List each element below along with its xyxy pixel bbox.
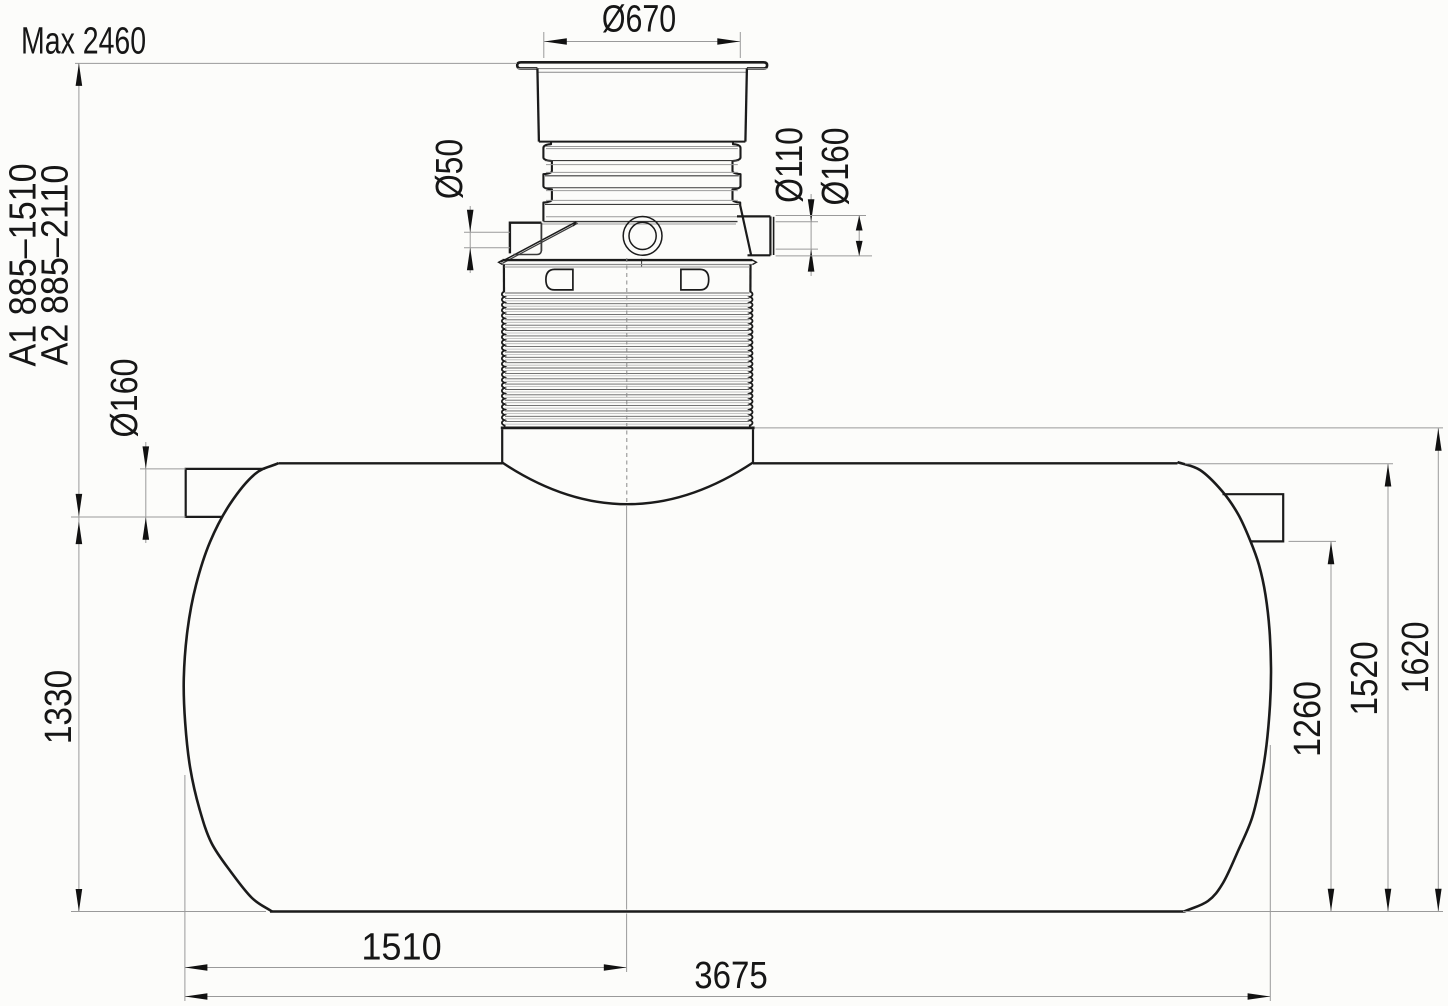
svg-text:1510: 1510 (361, 925, 441, 968)
svg-text:3675: 3675 (694, 954, 768, 997)
svg-text:1330: 1330 (37, 670, 79, 744)
svg-text:1520: 1520 (1343, 641, 1385, 715)
svg-text:Max 2460: Max 2460 (21, 21, 146, 63)
svg-text:Ø110: Ø110 (768, 127, 810, 203)
svg-text:Ø50: Ø50 (428, 139, 470, 199)
svg-text:1260: 1260 (1285, 681, 1328, 757)
svg-text:Ø160: Ø160 (104, 359, 146, 438)
svg-text:1620: 1620 (1395, 622, 1437, 694)
svg-text:Ø670: Ø670 (602, 0, 676, 40)
svg-text:Ø160: Ø160 (814, 127, 856, 205)
svg-text:A2 885–2110: A2 885–2110 (33, 165, 76, 366)
